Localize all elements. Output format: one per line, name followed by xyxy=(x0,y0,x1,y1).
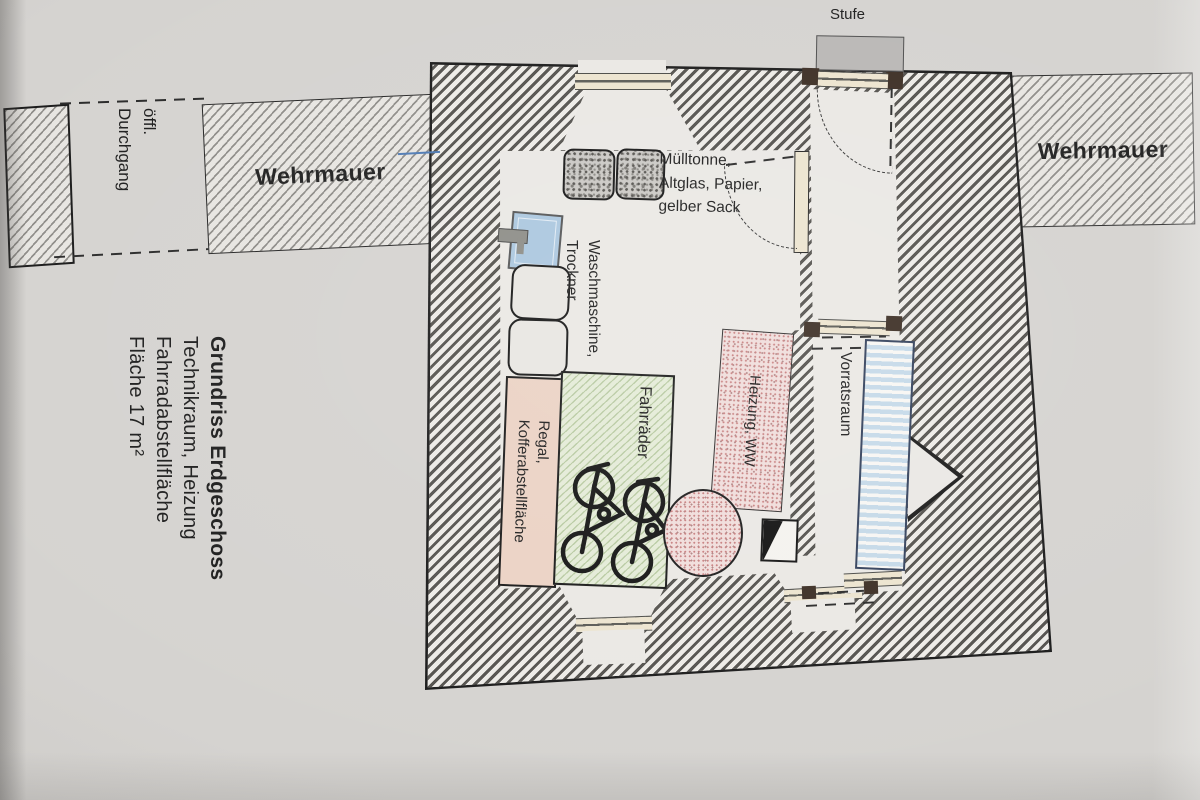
wasch-line2: Trockner xyxy=(563,240,580,301)
washer-dryer-label: Waschmaschine, Trockner xyxy=(560,240,604,375)
heizung-text: Heizung, WW xyxy=(740,374,763,467)
storage-shelf xyxy=(855,339,915,571)
waste-label-line2: Altglas, Papier, xyxy=(659,174,763,193)
entrance-step xyxy=(816,35,905,72)
passage-line1: öffl. xyxy=(140,108,159,135)
wehrmauer-right-label: Wehrmauer xyxy=(1037,135,1168,164)
vorrat-bottom-jamb-right xyxy=(864,581,878,594)
window-top-frame xyxy=(575,73,671,90)
mid-door-jamb-right xyxy=(886,316,903,332)
passage-line2: Durchgang xyxy=(115,108,134,191)
wehrmauer-left: Wehrmauer xyxy=(202,94,440,254)
vorratsraum-label: Vorratsraum xyxy=(836,352,854,467)
plan-subtitle-2: Fahrradabstellfläche xyxy=(152,336,174,523)
vorrat-bottom-jamb-left xyxy=(802,586,816,599)
wehrmauer-right: Wehrmauer xyxy=(1011,72,1196,227)
wall-fragment-left xyxy=(3,104,74,269)
wasch-line1: Waschmaschine, xyxy=(585,240,602,357)
waste-bin-1 xyxy=(562,148,615,200)
chimney-flue xyxy=(762,520,796,560)
vorratsraum-text: Vorratsraum xyxy=(837,352,854,436)
window-top-splay xyxy=(558,88,702,150)
wehrmauer-left-label: Wehrmauer xyxy=(255,158,387,191)
shelf-rack-label: Regal, Kofferabstellfläche xyxy=(509,420,554,545)
waste-label: Mülltonne, Altglas, Papier, gelber Sack xyxy=(658,148,794,221)
mid-door-jamb-left xyxy=(804,322,821,338)
window-bl-shaft xyxy=(582,629,645,665)
sink-tap-stub xyxy=(516,238,524,254)
boiler-circle xyxy=(663,489,743,577)
waste-label-line3: gelber Sack xyxy=(658,198,740,217)
entrance-jamb-right xyxy=(886,72,904,90)
heating-area: Heizung, WW xyxy=(710,329,794,513)
window-embrasure-top xyxy=(558,60,702,152)
passage-dash-top xyxy=(60,97,212,104)
plan-subtitle-1: Technikraum, Heizung xyxy=(179,336,201,540)
chimney xyxy=(760,518,798,562)
title-block: Grundriss Erdgeschoss Technikraum, Heizu… xyxy=(122,336,231,598)
plan-area: Fläche 17 m² xyxy=(125,336,147,456)
bicycle-area-label: Fahrräder xyxy=(633,386,655,459)
floor-plan: öffl. Durchgang Wehrmauer Wehrmauer xyxy=(0,0,1200,800)
heating-label: Heizung, WW xyxy=(740,374,763,467)
fahrraeder-text: Fahrräder xyxy=(634,386,655,459)
waste-label-line1: Mülltonne, xyxy=(659,151,731,169)
public-passage-label: öffl. Durchgang xyxy=(112,108,162,258)
stufe-text: Stufe xyxy=(830,6,865,23)
plan-title: Grundriss Erdgeschoss xyxy=(206,336,229,580)
mid-door-threshold xyxy=(818,319,890,337)
entrance-jamb-left xyxy=(802,68,820,86)
entrance-threshold xyxy=(818,71,889,89)
regal-line2: Kofferabstellfläche xyxy=(511,420,533,544)
regal-line1: Regal, xyxy=(534,421,553,465)
stufe-label: Stufe xyxy=(830,6,865,23)
